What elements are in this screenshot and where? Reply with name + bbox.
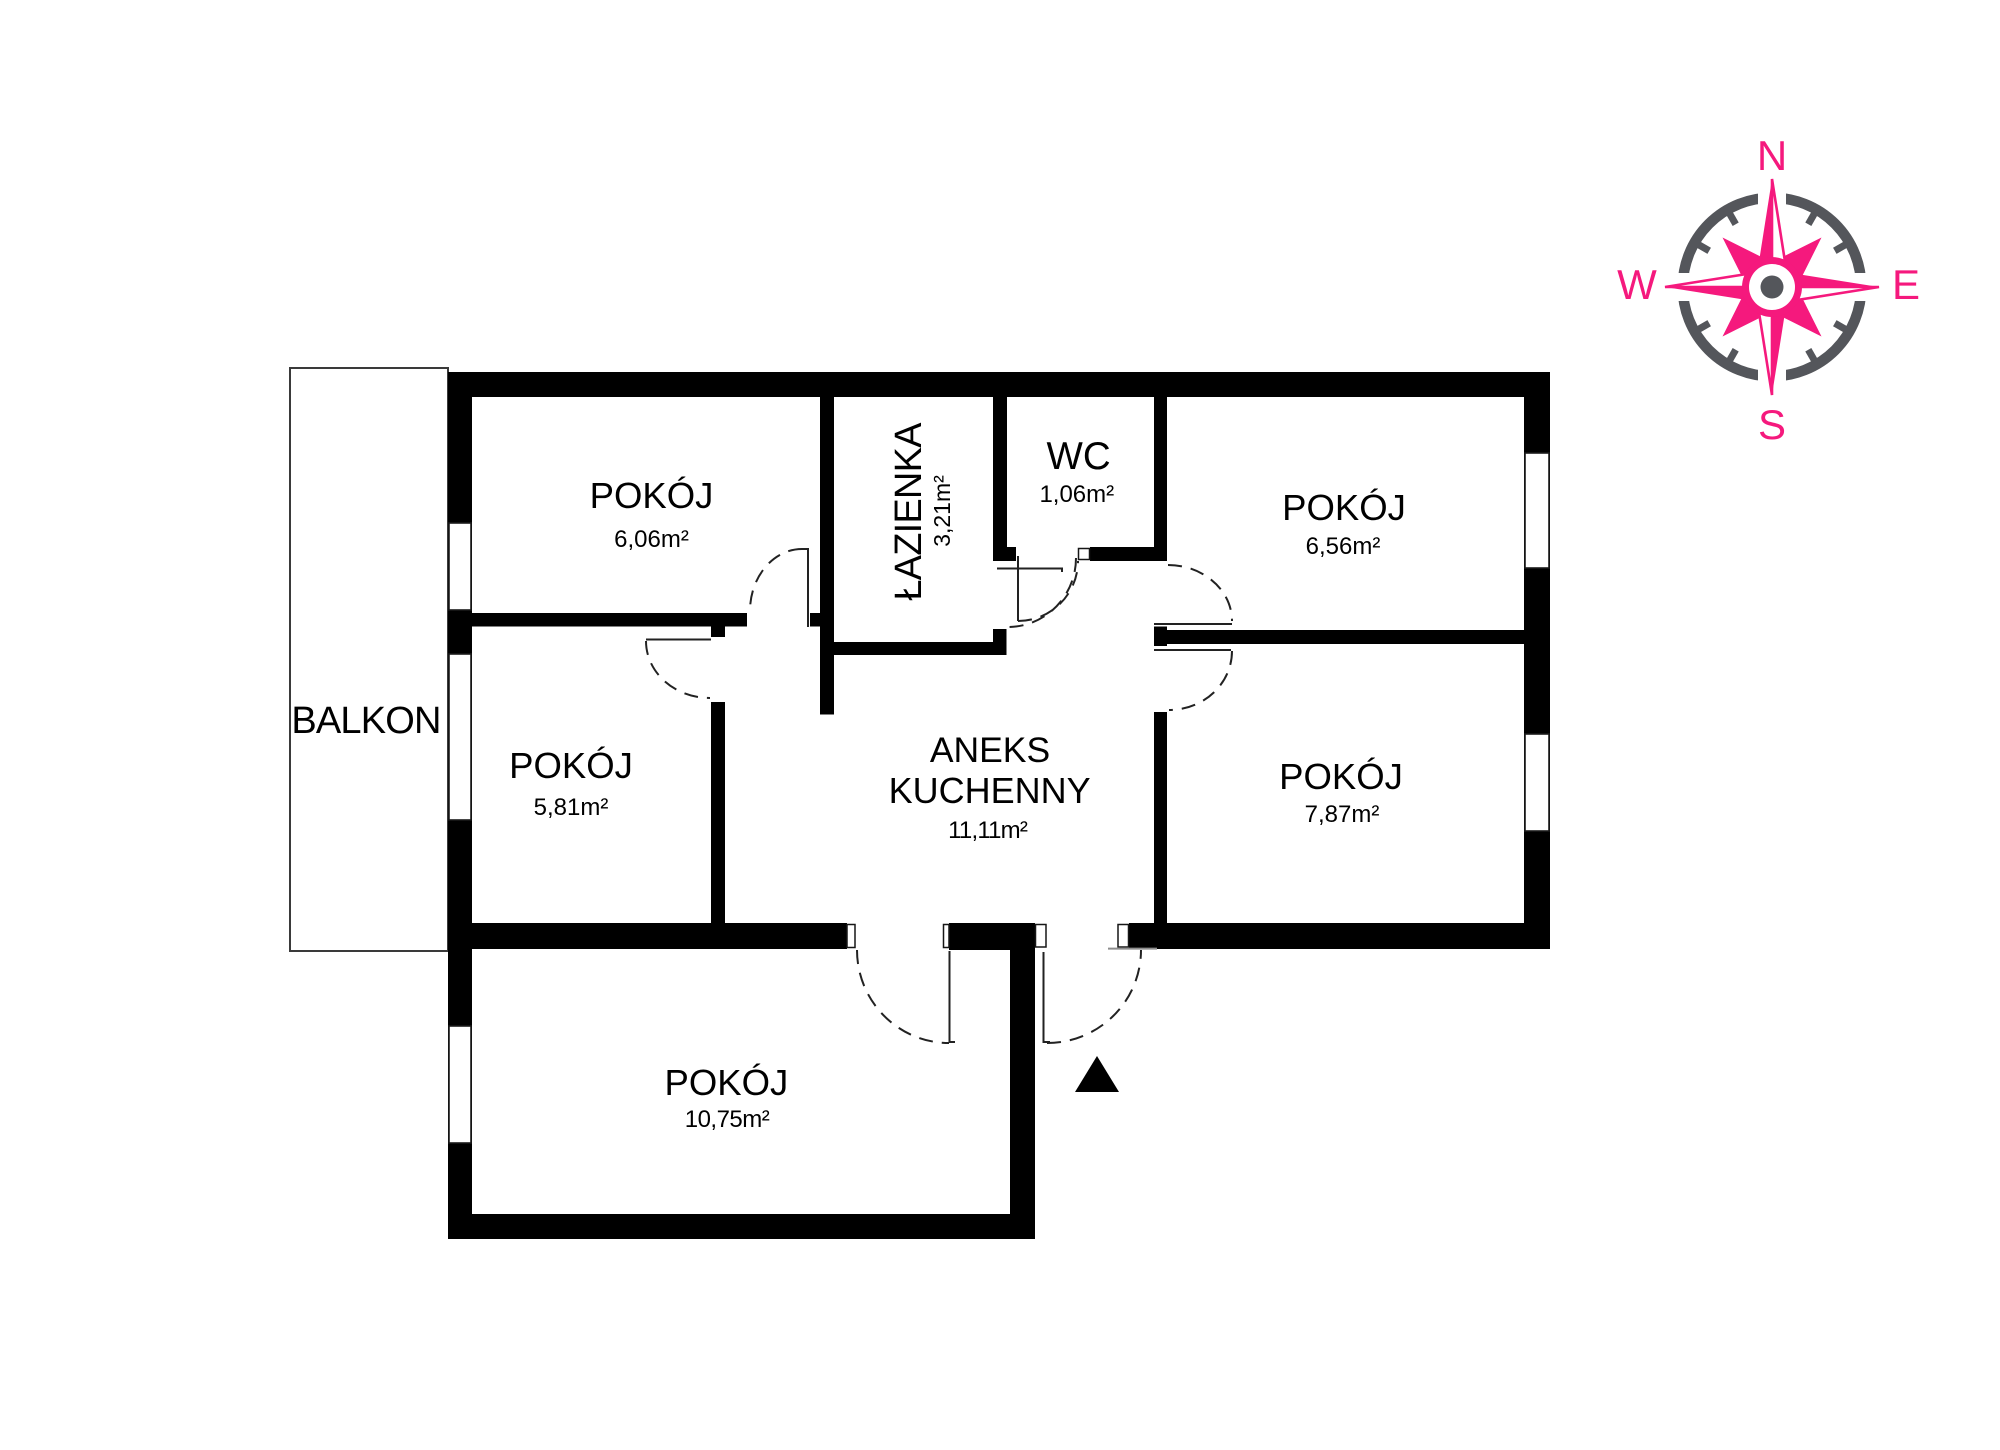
- svg-text:5,81m²: 5,81m²: [534, 794, 609, 821]
- svg-text:11,11m²: 11,11m²: [948, 817, 1028, 844]
- svg-text:ŁAZIENKA: ŁAZIENKA: [888, 422, 930, 601]
- svg-text:S: S: [1758, 401, 1786, 448]
- svg-text:3,21m²: 3,21m²: [929, 475, 955, 547]
- svg-text:10,75m²: 10,75m²: [685, 1106, 770, 1133]
- svg-text:BALKON: BALKON: [291, 700, 440, 742]
- svg-text:7,87m²: 7,87m²: [1305, 801, 1380, 828]
- svg-text:E: E: [1892, 261, 1920, 308]
- svg-text:1,06m²: 1,06m²: [1039, 481, 1114, 508]
- svg-text:KUCHENNY: KUCHENNY: [889, 770, 1091, 811]
- svg-text:WC: WC: [1047, 435, 1111, 478]
- svg-text:6,06m²: 6,06m²: [614, 526, 689, 553]
- svg-text:POKÓJ: POKÓJ: [1282, 487, 1406, 528]
- svg-text:N: N: [1757, 132, 1787, 179]
- svg-text:POKÓJ: POKÓJ: [665, 1062, 789, 1103]
- svg-text:POKÓJ: POKÓJ: [1279, 756, 1403, 797]
- svg-text:POKÓJ: POKÓJ: [509, 745, 633, 786]
- svg-text:W: W: [1617, 261, 1657, 308]
- svg-text:POKÓJ: POKÓJ: [590, 475, 714, 516]
- svg-text:6,56m²: 6,56m²: [1306, 533, 1381, 560]
- svg-text:ANEKS: ANEKS: [930, 730, 1050, 770]
